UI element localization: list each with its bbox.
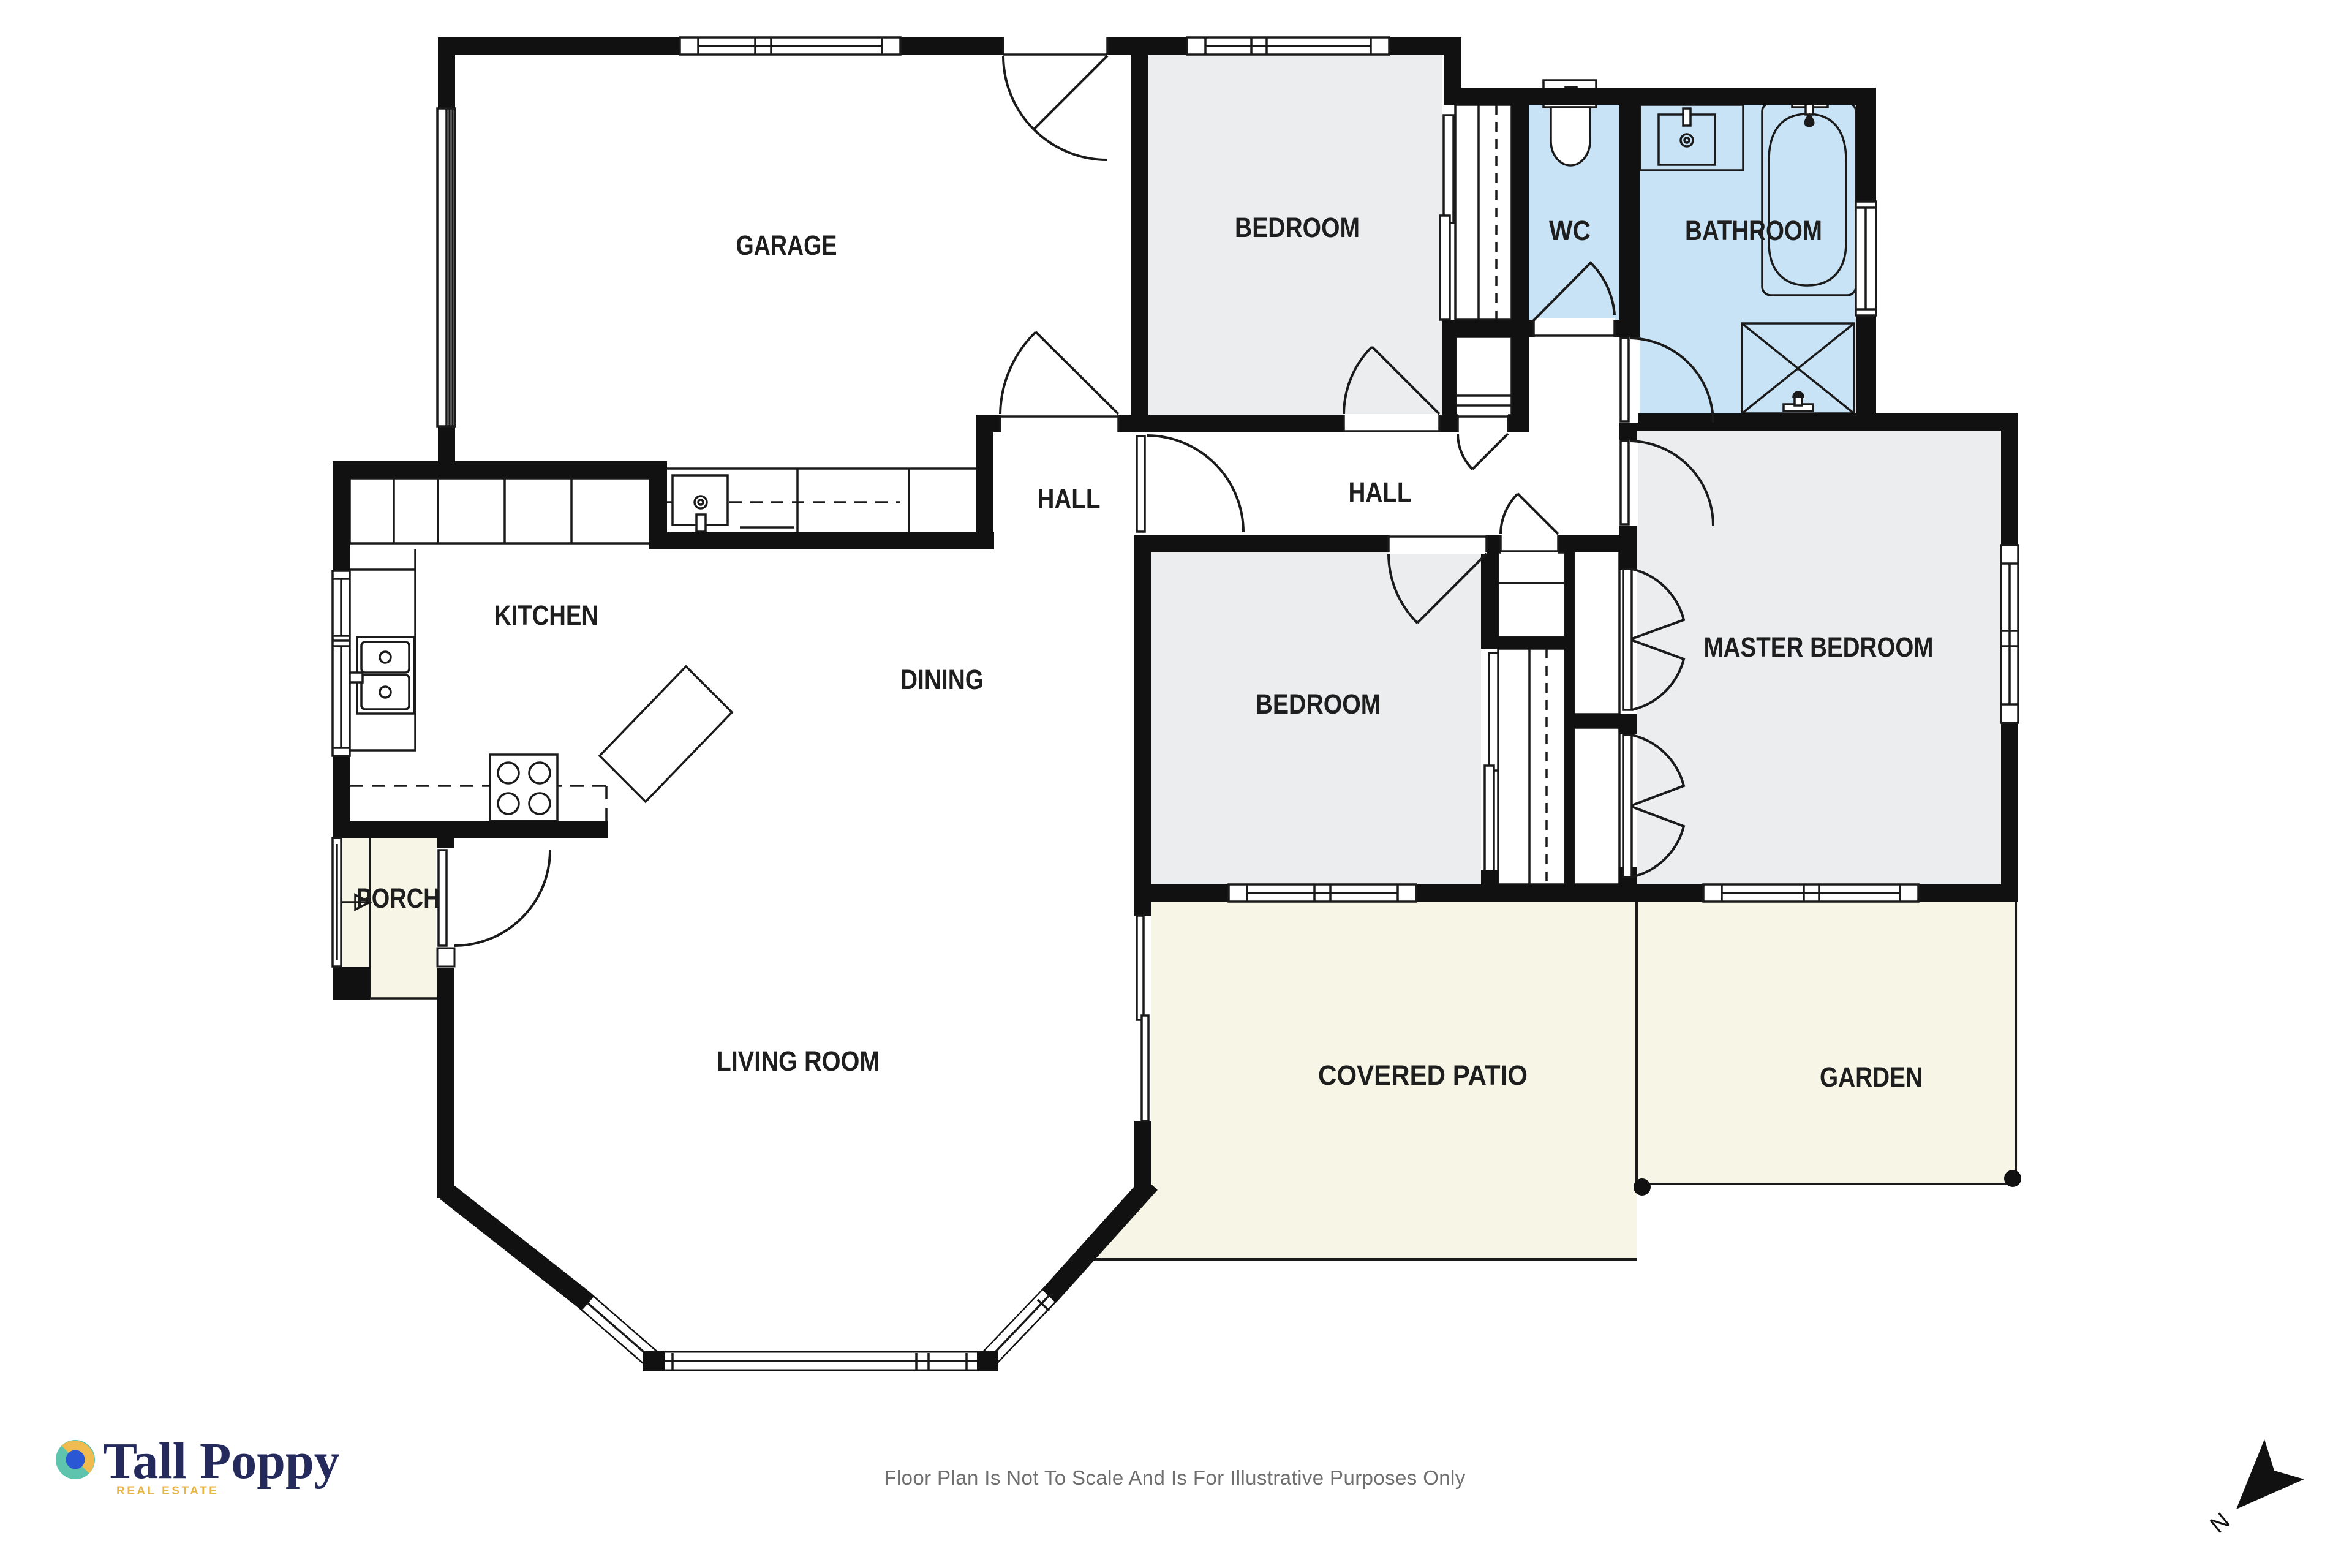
svg-text:BEDROOM: BEDROOM — [1256, 688, 1381, 720]
svg-text:HALL: HALL — [1038, 483, 1101, 514]
svg-text:BEDROOM: BEDROOM — [1235, 212, 1360, 243]
svg-text:Floor Plan Is Not To Scale And: Floor Plan Is Not To Scale And Is For Il… — [884, 1466, 1465, 1489]
svg-text:GARAGE: GARAGE — [736, 230, 837, 261]
svg-text:DINING: DINING — [900, 664, 984, 695]
svg-text:WC: WC — [1549, 215, 1591, 246]
svg-text:KITCHEN: KITCHEN — [494, 600, 598, 631]
svg-text:HALL: HALL — [1349, 477, 1412, 508]
svg-text:PORCH: PORCH — [356, 883, 440, 914]
svg-text:REAL ESTATE: REAL ESTATE — [116, 1485, 219, 1498]
svg-text:BATHROOM: BATHROOM — [1685, 215, 1822, 246]
svg-text:LIVING ROOM: LIVING ROOM — [717, 1046, 880, 1077]
svg-text:Tall Poppy: Tall Poppy — [103, 1433, 340, 1490]
svg-text:GARDEN: GARDEN — [1820, 1061, 1923, 1093]
svg-text:MASTER BEDROOM: MASTER BEDROOM — [1704, 631, 1934, 663]
svg-text:COVERED PATIO: COVERED PATIO — [1318, 1060, 1528, 1091]
